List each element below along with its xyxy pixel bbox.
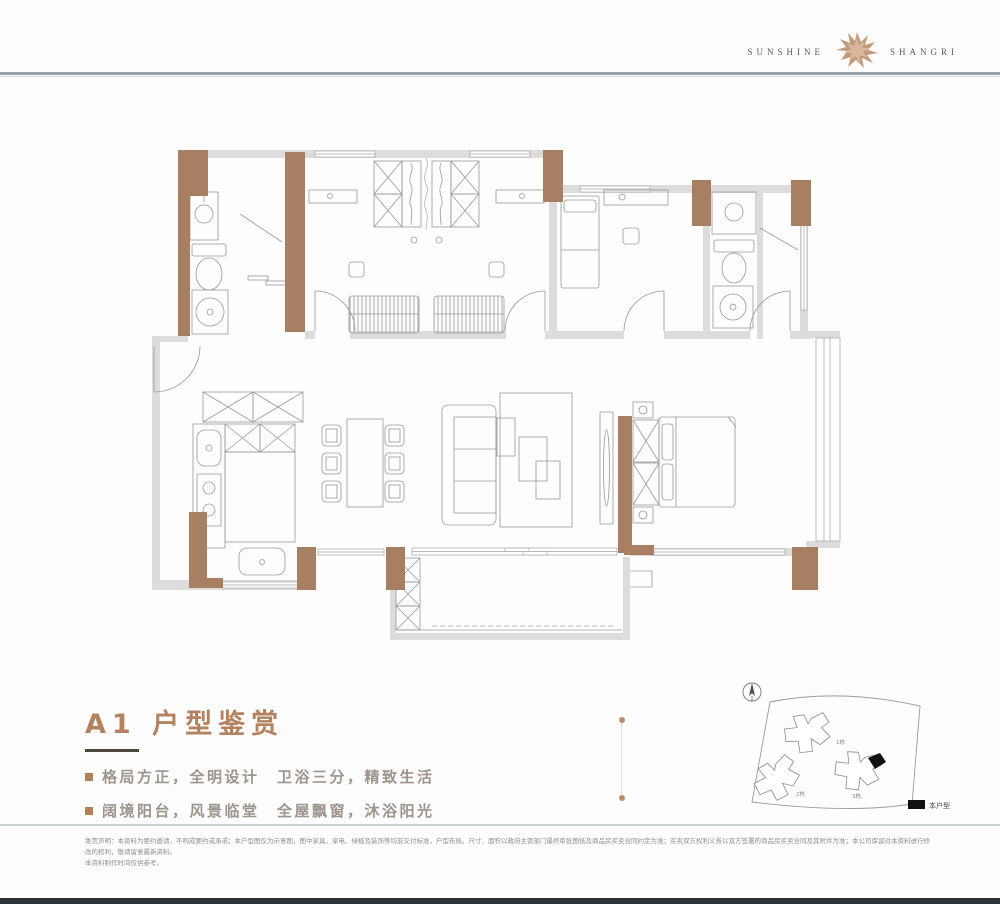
building-label-3: 3栋 — [852, 792, 861, 800]
disclaimer-line-1: 免责声明：本资料为要约邀请，不构成要约或承诺；本户型图仅为示意图，图中家具、家电… — [85, 836, 930, 858]
page-title: A1 户型鉴赏 — [85, 702, 435, 741]
building-label-1: 1栋 — [836, 738, 845, 746]
brochure-page: SUNSHINE SHANGRI — [0, 0, 1000, 904]
bedroom-3 — [425, 158, 544, 333]
building-3 — [828, 740, 888, 799]
dining-set — [322, 419, 404, 507]
brand-logo: SUNSHINE SHANGRI — [747, 30, 958, 74]
disclaimer-line-2: 本资料制作时间仅供参考。 — [85, 858, 930, 869]
legend: 本户型 — [908, 800, 950, 810]
bullet-square-icon — [85, 807, 93, 815]
disclaimer: 免责声明：本资料为要约邀请，不构成要约或承诺；本户型图仅为示意图，图中家具、家电… — [85, 836, 930, 869]
bathroom-1 — [190, 192, 286, 334]
living-room — [442, 393, 572, 527]
kitchen — [193, 392, 303, 575]
legend-label: 本户型 — [929, 801, 950, 810]
site-plan: 1栋 2栋 3栋 本户型 — [700, 672, 970, 822]
brand-word-right: SHANGRI — [890, 47, 958, 57]
header-rule — [0, 72, 1000, 77]
brand-leaf-icon — [834, 30, 880, 74]
bedroom-4 — [561, 190, 668, 288]
bathroom-2 — [712, 192, 798, 328]
balcony — [396, 558, 652, 630]
selling-point-1: 格局方正，全明设计 卫浴三分，精致生活 — [85, 766, 435, 787]
north-arrow-icon — [743, 683, 761, 702]
windows — [222, 151, 840, 588]
floor-plan — [140, 135, 850, 665]
bottom-dark-bar — [0, 898, 1000, 904]
vertical-divider — [621, 722, 622, 796]
walls — [152, 150, 840, 640]
bullet-square-icon — [85, 773, 93, 781]
bedroom-2 — [309, 161, 421, 333]
furniture — [154, 158, 798, 630]
selling-point-2: 阔境阳台，风景临堂 全屋飘窗，沐浴阳光 — [85, 800, 435, 821]
headline-block: A1 户型鉴赏 格局方正，全明设计 卫浴三分，精致生活 阔境阳台，风景临堂 全屋… — [85, 702, 435, 821]
building-label-2: 2栋 — [796, 790, 805, 798]
building-2 — [751, 753, 803, 803]
columns — [178, 150, 818, 590]
footer-rule — [0, 824, 1000, 826]
brand-word-left: SUNSHINE — [747, 47, 824, 57]
legend-swatch — [908, 800, 925, 809]
title-underline — [85, 749, 139, 752]
building-1 — [780, 706, 834, 759]
